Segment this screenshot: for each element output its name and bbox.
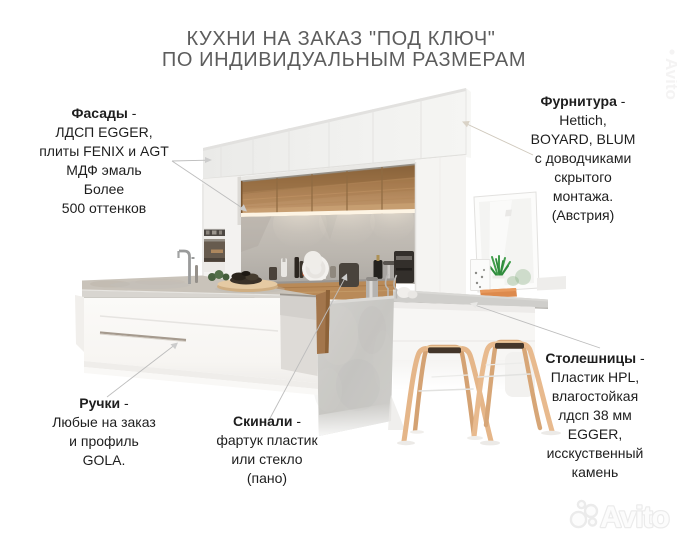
svg-text:Avito: Avito (600, 501, 670, 534)
svg-text:Avito: Avito (662, 58, 677, 100)
